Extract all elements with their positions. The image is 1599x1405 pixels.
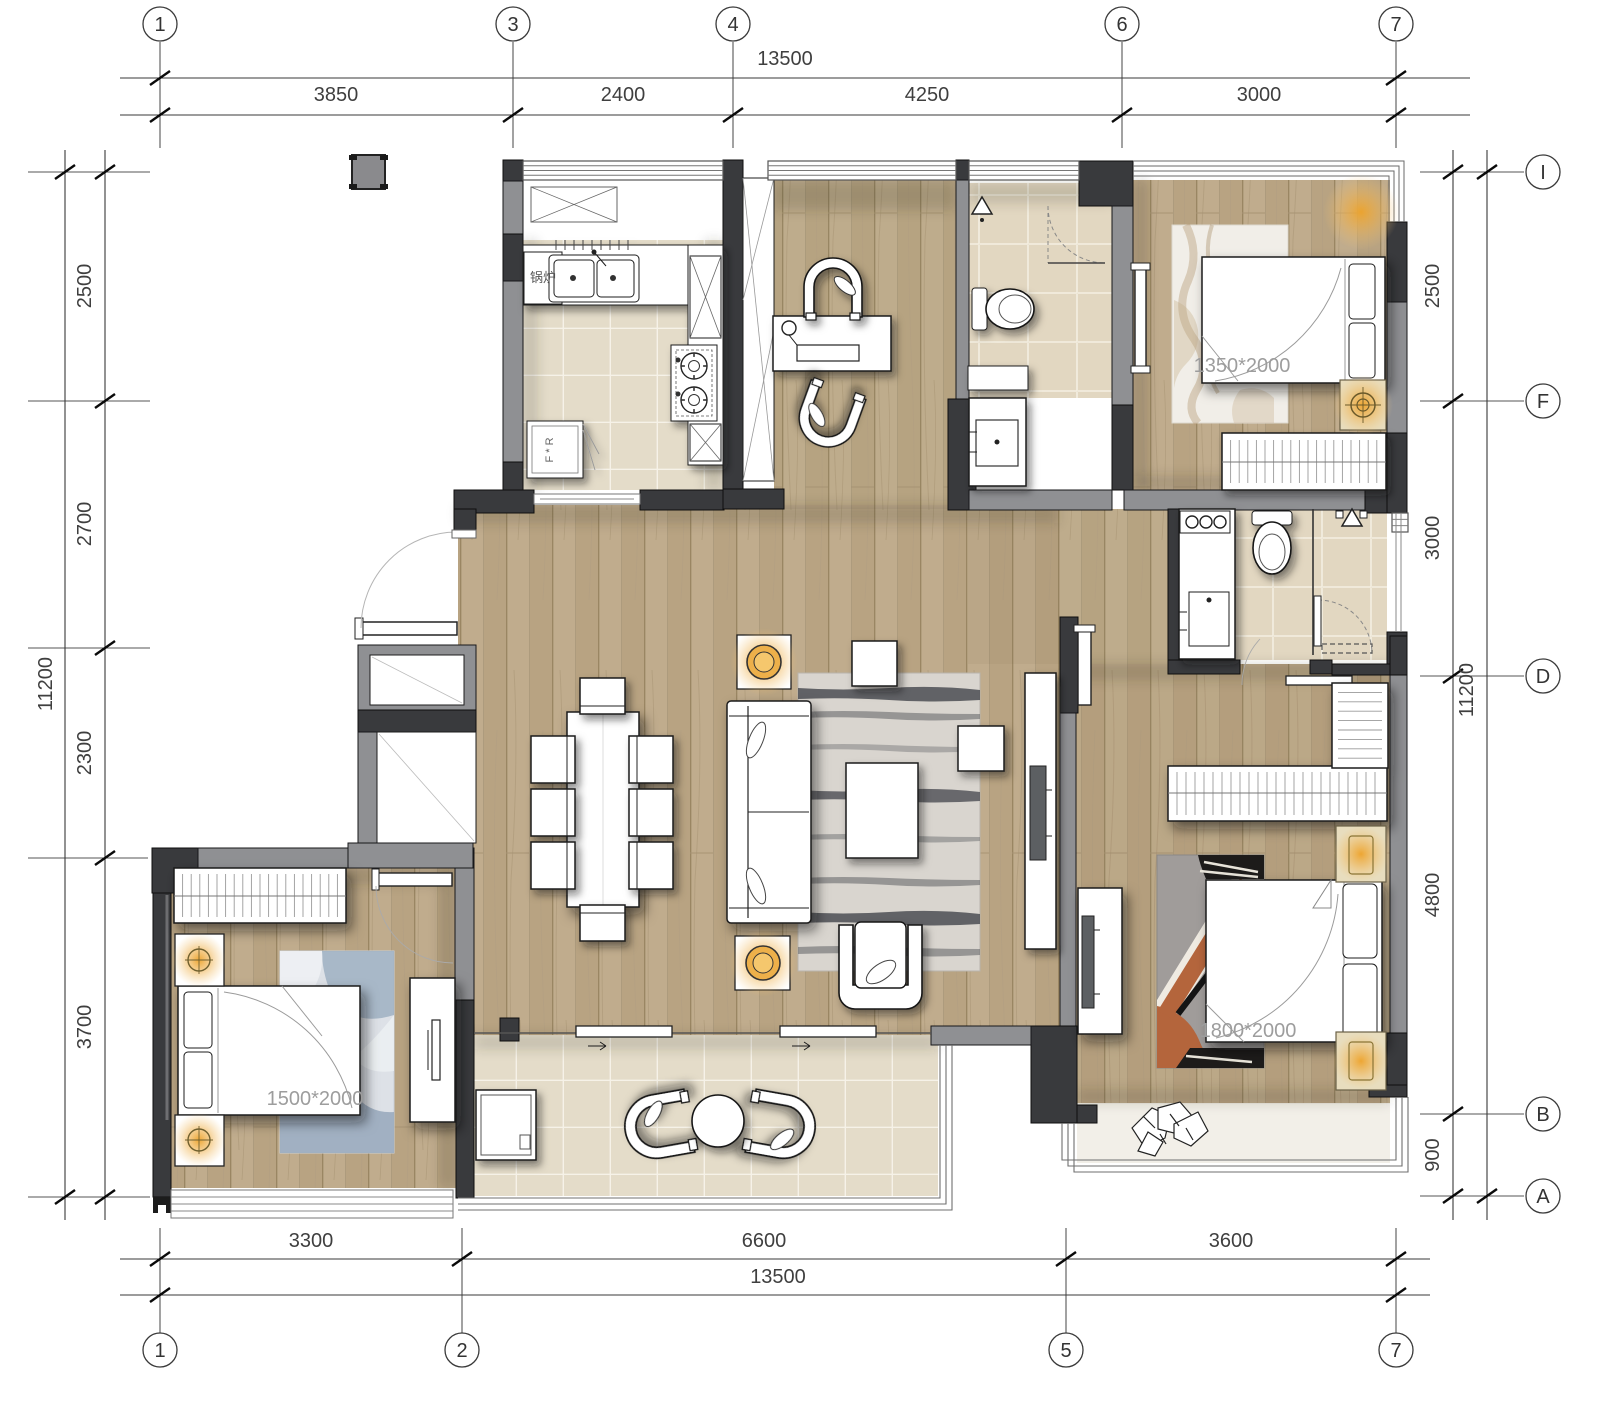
- svg-text:2400: 2400: [601, 84, 646, 106]
- svg-text:2500: 2500: [74, 264, 96, 309]
- svg-text:F: F: [1537, 391, 1549, 413]
- svg-text:1: 1: [154, 14, 165, 36]
- svg-text:2300: 2300: [74, 731, 96, 776]
- svg-text:3600: 3600: [1209, 1230, 1254, 1252]
- svg-text:11200: 11200: [35, 657, 57, 711]
- svg-text:6600: 6600: [742, 1230, 787, 1252]
- svg-text:5: 5: [1060, 1340, 1071, 1362]
- svg-text:3300: 3300: [289, 1230, 334, 1252]
- svg-text:F * R: F * R: [544, 437, 556, 462]
- svg-text:锅炉: 锅炉: [530, 270, 556, 285]
- svg-text:900: 900: [1422, 1138, 1444, 1171]
- svg-text:3700: 3700: [74, 1005, 96, 1050]
- svg-text:D: D: [1536, 666, 1550, 688]
- svg-text:3850: 3850: [314, 84, 359, 106]
- svg-text:13500: 13500: [757, 48, 813, 70]
- svg-text:11200: 11200: [1456, 663, 1478, 717]
- svg-text:2: 2: [456, 1340, 467, 1362]
- svg-text:B: B: [1536, 1104, 1549, 1126]
- svg-text:2500: 2500: [1422, 264, 1444, 309]
- svg-text:1350*2000: 1350*2000: [1194, 355, 1291, 377]
- svg-text:7: 7: [1390, 1340, 1401, 1362]
- svg-text:3000: 3000: [1422, 516, 1444, 561]
- svg-text:2700: 2700: [74, 502, 96, 547]
- svg-text:1: 1: [154, 1340, 165, 1362]
- svg-text:4: 4: [727, 14, 738, 36]
- svg-text:1500*2000: 1500*2000: [267, 1088, 364, 1110]
- svg-text:4250: 4250: [905, 84, 950, 106]
- svg-text:13500: 13500: [750, 1266, 806, 1288]
- svg-text:A: A: [1536, 1186, 1550, 1208]
- svg-text:7: 7: [1390, 14, 1401, 36]
- svg-text:6: 6: [1116, 14, 1127, 36]
- svg-text:4800: 4800: [1422, 873, 1444, 918]
- svg-text:3000: 3000: [1237, 84, 1282, 106]
- svg-text:1800*2000: 1800*2000: [1200, 1020, 1297, 1042]
- svg-text:3: 3: [507, 14, 518, 36]
- svg-text:I: I: [1540, 162, 1546, 184]
